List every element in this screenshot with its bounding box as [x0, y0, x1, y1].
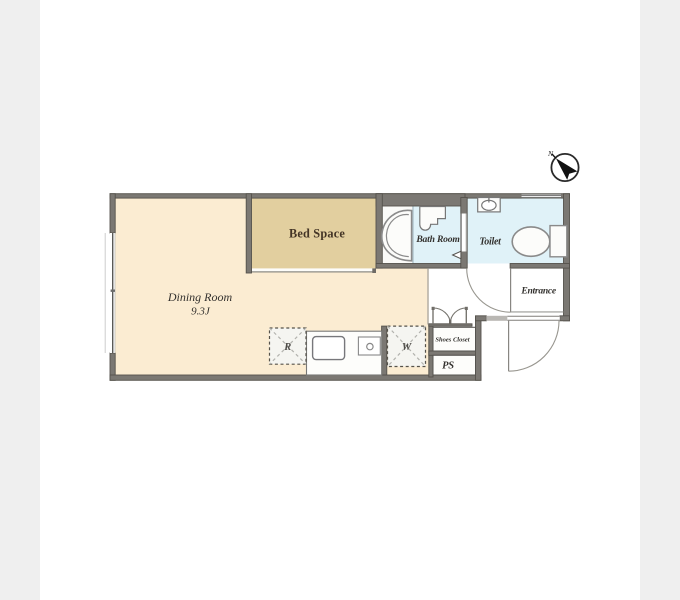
svg-text:Bath Room: Bath Room — [415, 234, 459, 245]
svg-text:Bed Space: Bed Space — [289, 226, 345, 240]
svg-text:W: W — [402, 342, 412, 353]
svg-text:Shoes Closet: Shoes Closet — [435, 337, 469, 344]
svg-text:Toilet: Toilet — [479, 236, 502, 247]
svg-text:Entrance: Entrance — [520, 286, 556, 297]
svg-text:Dining Room: Dining Room — [167, 290, 233, 304]
svg-text:R: R — [283, 342, 291, 353]
svg-text:PS: PS — [442, 360, 454, 371]
svg-text:N: N — [547, 149, 554, 158]
svg-text:9.3J: 9.3J — [191, 306, 211, 318]
